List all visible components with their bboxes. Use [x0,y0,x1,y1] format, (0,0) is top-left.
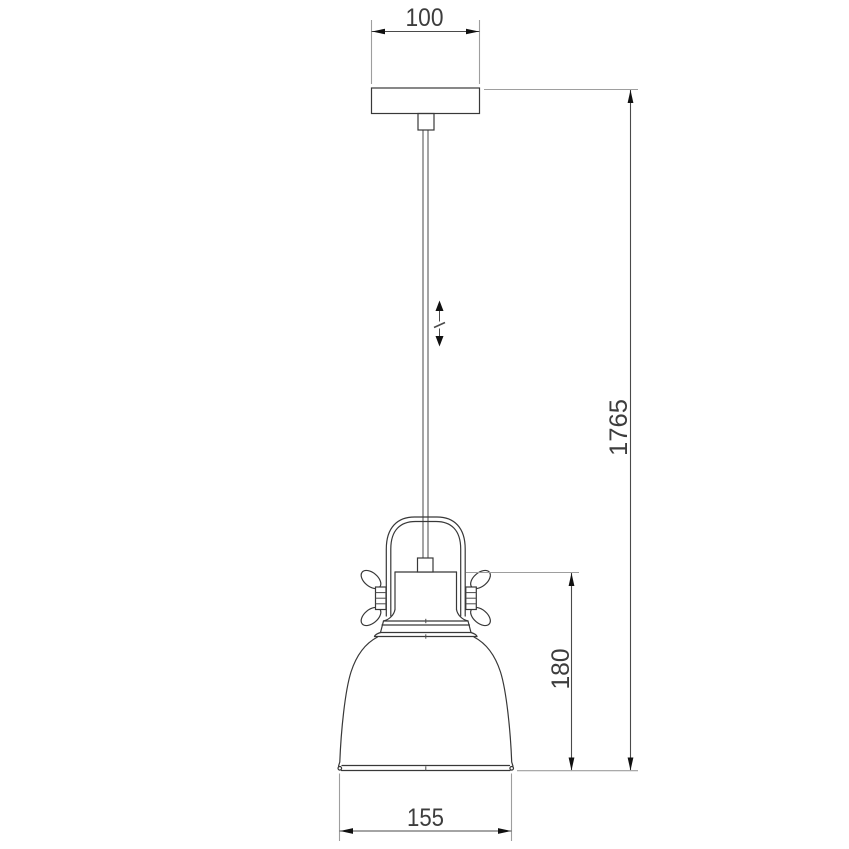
dim-arrowhead [340,828,353,834]
dim-canopy-width: 100 [372,4,480,84]
adjust-break-mark [434,323,445,328]
height-adjust-arrow-icon [434,301,445,347]
suspension-cord [423,130,428,558]
overall-height-dimension-label: 1765 [605,399,633,456]
dim-arrowhead [466,29,479,35]
shade-ring-side-left [381,621,384,633]
bell-shade [338,610,514,771]
dim-arrowhead [372,29,385,35]
canopy-width-dimension-label: 100 [406,4,444,32]
dim-shade-diameter: 155 [340,774,512,842]
lamp-holder [395,572,457,610]
cord-connector [418,114,434,131]
shade-ring-side-right [468,621,471,633]
shade-rim-bead-right [510,767,514,771]
drawing-canvas: 100 1765 180 155 [0,0,849,849]
shade-neck-flare-right [457,610,469,622]
wing-nut-left [358,567,386,629]
adjust-arrow-up-head [436,301,444,312]
adjust-arrow-down-head [436,336,444,347]
cord-ferrule [418,558,434,572]
lamp-object [338,88,514,771]
wing-nut-right [466,567,494,629]
ceiling-canopy [372,88,480,114]
pendant-lamp-dimension-drawing: 100 1765 180 155 [0,0,849,849]
dim-shade-height: 180 [466,573,579,771]
dim-arrowhead [569,758,575,771]
dim-arrowhead [569,573,575,586]
shade-height-dimension-label: 180 [547,649,575,690]
shade-rim-bead-left [338,767,342,771]
shade-neck-flare-left [384,610,396,622]
dim-arrowhead [628,90,634,103]
shade-diameter-dimension-label: 155 [407,804,444,832]
dim-arrowhead [628,758,634,771]
shade-profile-right [474,637,513,766]
dim-arrowhead [498,828,511,834]
shade-profile-left [339,637,378,766]
